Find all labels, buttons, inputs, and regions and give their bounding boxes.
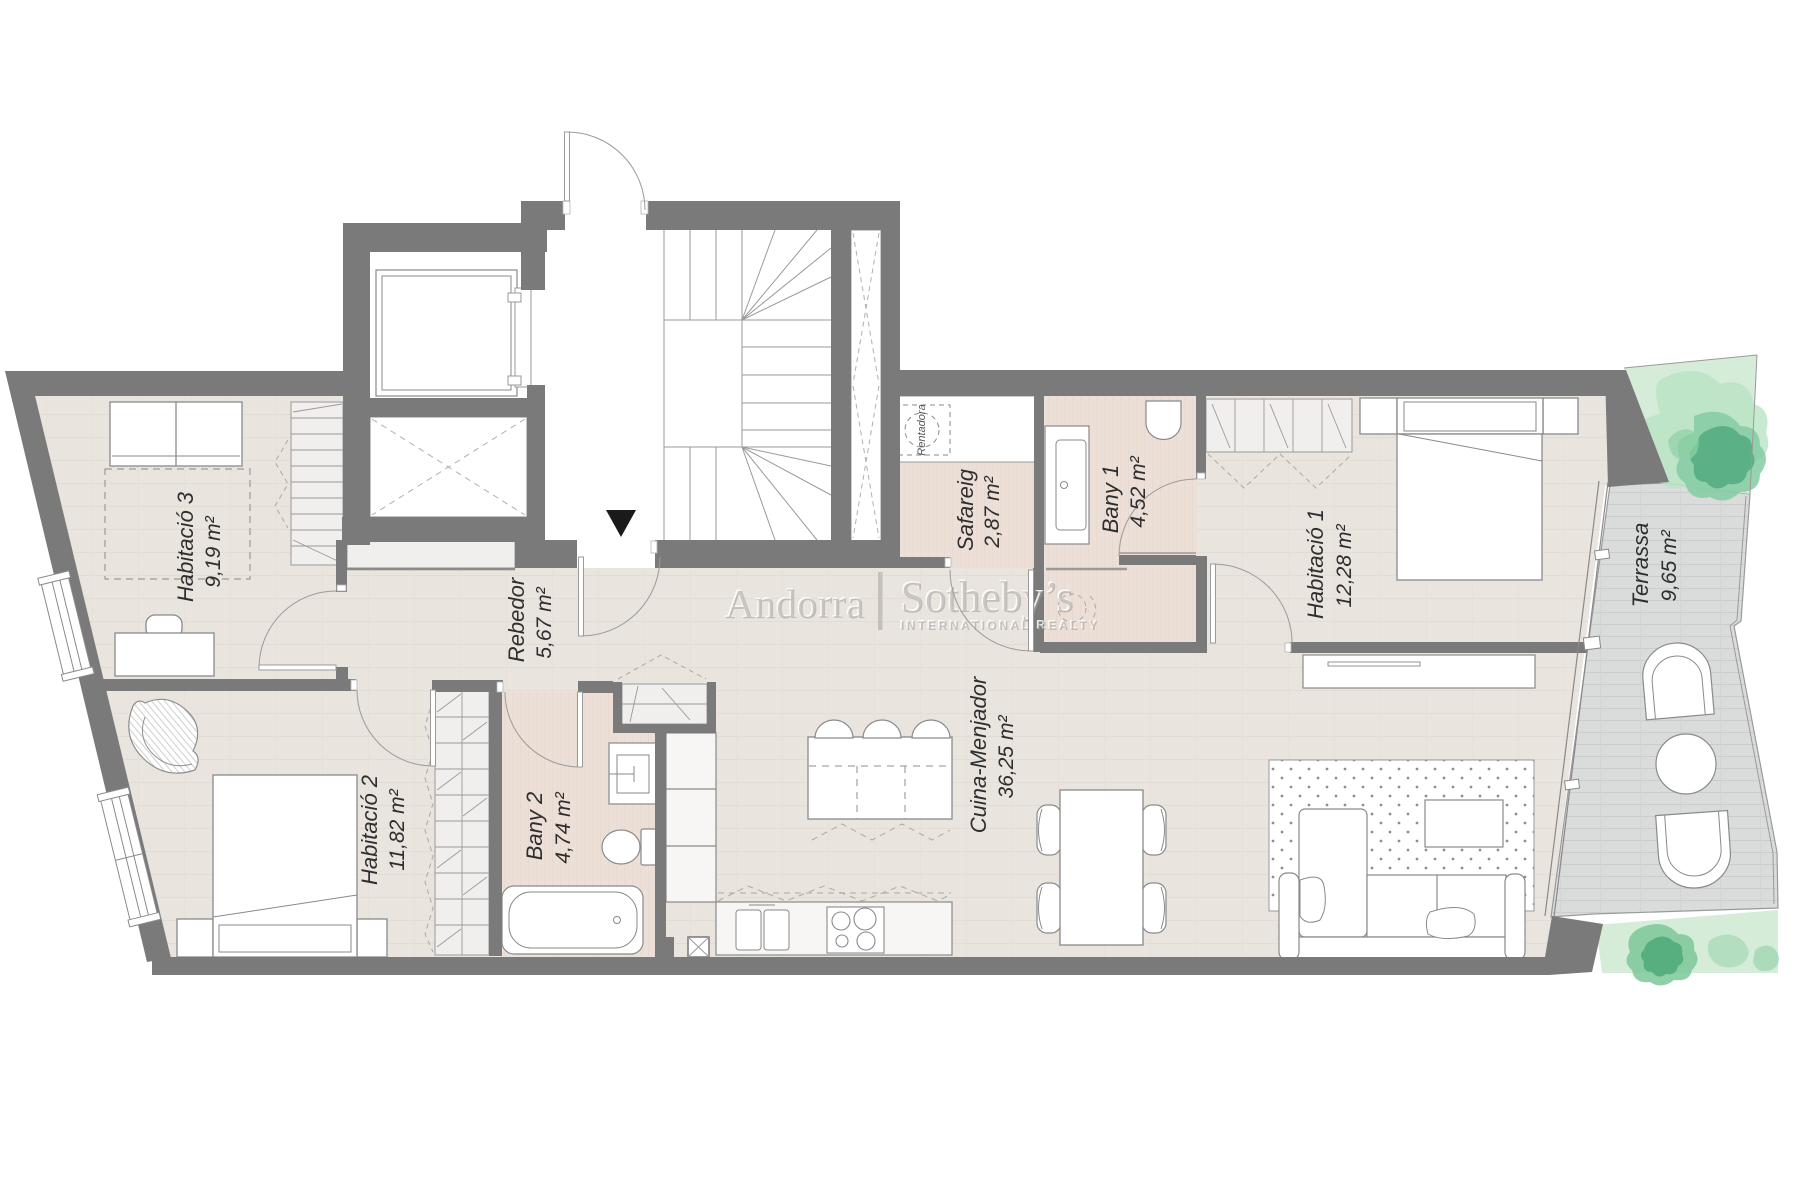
svg-text:Rebedor: Rebedor: [504, 576, 529, 662]
svg-text:Habitació 1: Habitació 1: [1303, 509, 1328, 619]
svg-text:Rentadora: Rentadora: [916, 404, 928, 455]
svg-text:Bany 2: Bany 2: [522, 792, 547, 861]
svg-text:12,28 m²: 12,28 m²: [1333, 524, 1356, 608]
svg-text:Cuina-Menjador: Cuina-Menjador: [966, 675, 991, 833]
svg-text:2,87 m²: 2,87 m²: [981, 475, 1004, 548]
svg-text:5,67 m²: 5,67 m²: [533, 586, 556, 658]
svg-text:Bany 1: Bany 1: [1098, 465, 1123, 534]
svg-text:36,25 m²: 36,25 m²: [995, 715, 1018, 799]
svg-text:INTERNATIONAL REALTY: INTERNATIONAL REALTY: [901, 619, 1100, 633]
svg-text:Habitació 3: Habitació 3: [173, 491, 198, 602]
svg-text:9,19 m²: 9,19 m²: [202, 515, 225, 587]
svg-text:Safareig: Safareig: [953, 468, 978, 551]
svg-text:4,74 m²: 4,74 m²: [552, 791, 575, 863]
svg-text:11,82 m²: 11,82 m²: [386, 788, 409, 870]
svg-text:Habitació 2: Habitació 2: [357, 775, 382, 885]
svg-text:9,65 m²: 9,65 m²: [1658, 529, 1681, 601]
svg-text:4,52 m²: 4,52 m²: [1127, 455, 1150, 527]
svg-text:Terrassa: Terrassa: [1628, 523, 1653, 608]
svg-text:Andorra: Andorra: [725, 581, 865, 627]
svg-text:Sotheby’s: Sotheby’s: [901, 573, 1075, 622]
